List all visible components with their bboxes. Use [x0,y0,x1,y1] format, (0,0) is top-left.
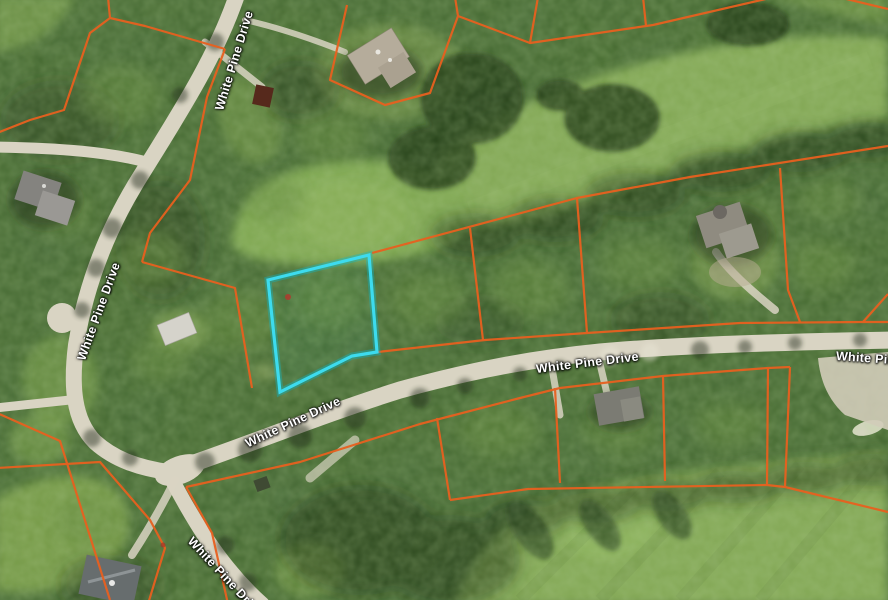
cul-de-sac [47,303,77,333]
parcel-marker-dot [285,294,291,300]
map-canvas [0,0,888,600]
satellite-map[interactable]: White Pine Drive White Pine Drive White … [0,0,888,600]
survey-marker-dot [161,543,166,548]
terrain-layer [0,0,888,600]
